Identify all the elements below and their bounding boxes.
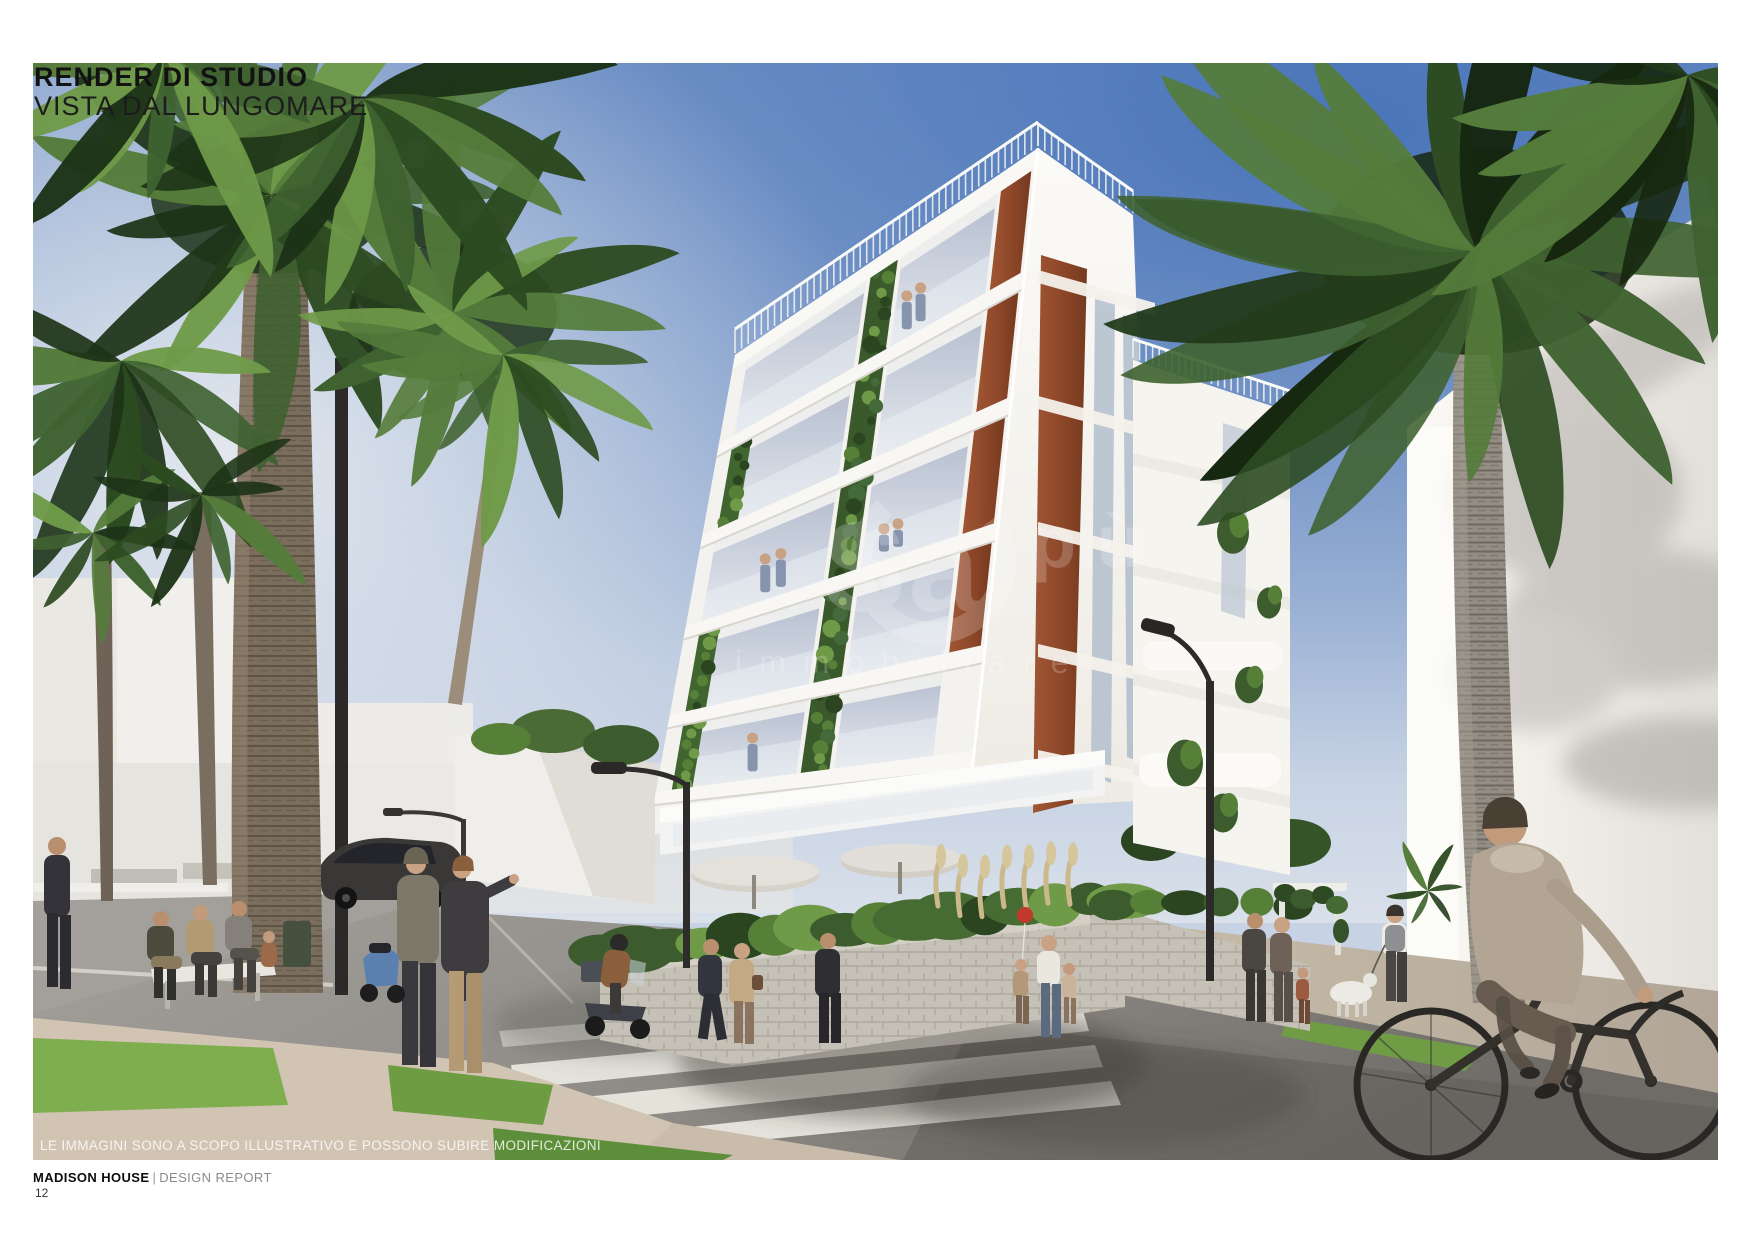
trash-bin: [283, 921, 311, 967]
title-line2: VISTA DAL LUNGOMARE: [34, 92, 368, 121]
title-line1: RENDER DI STUDIO: [34, 63, 368, 92]
image-disclaimer: LE IMMAGINI SONO A SCOPO ILLUSTRATIVO E …: [40, 1138, 601, 1153]
footer-project: MADISON HOUSE: [33, 1170, 149, 1185]
watermark-accent-text: più: [1031, 500, 1142, 583]
footer-document: DESIGN REPORT: [159, 1170, 272, 1185]
report-page: Sa più immobiliare RENDER DI STUDIO VIST…: [0, 0, 1754, 1241]
watermark-line2-text: immobiliare: [735, 644, 1086, 680]
footer-separator: |: [149, 1170, 159, 1185]
watermark-large-text: Sa: [821, 496, 982, 639]
page-footer: MADISON HOUSE|DESIGN REPORT 12: [33, 1170, 272, 1200]
page-number: 12: [35, 1186, 272, 1200]
render-scene: Sa più immobiliare: [33, 63, 1718, 1160]
page-title: RENDER DI STUDIO VISTA DAL LUNGOMARE: [34, 63, 368, 121]
standing-figure-far-left: [44, 837, 71, 989]
render-image: Sa più immobiliare RENDER DI STUDIO VIST…: [33, 63, 1718, 1160]
